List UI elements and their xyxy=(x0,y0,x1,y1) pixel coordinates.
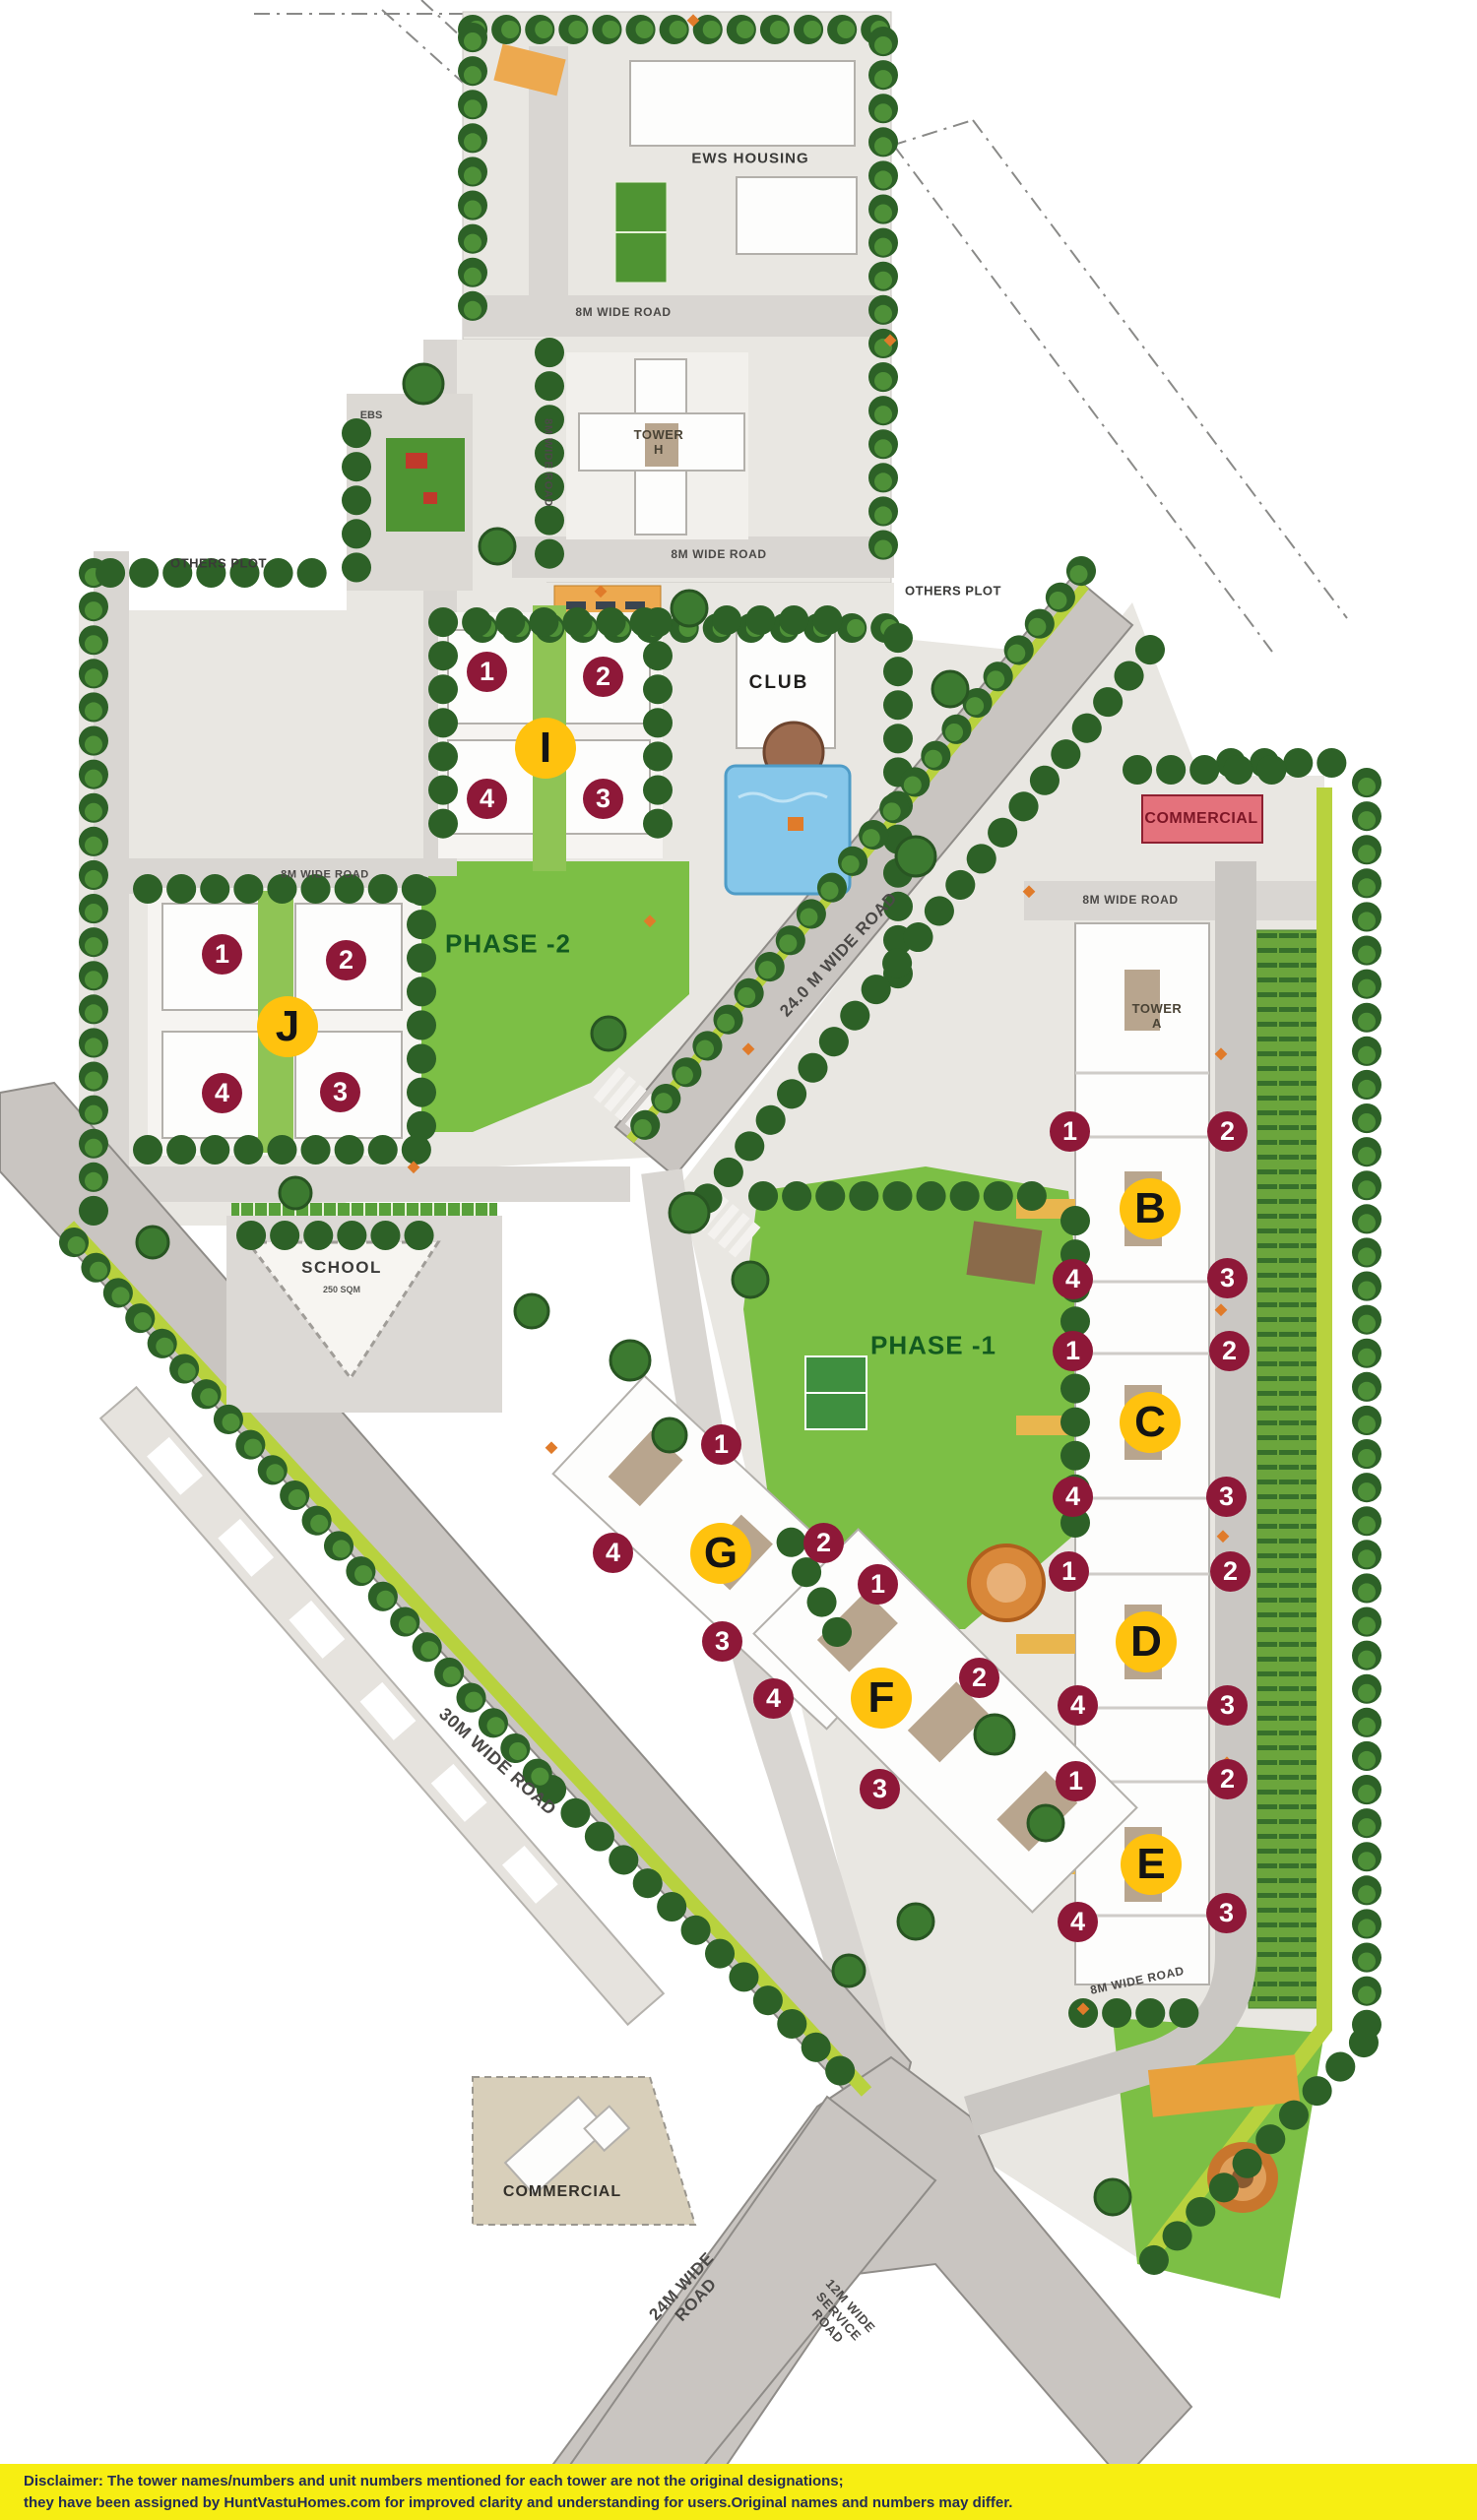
tower-i-unit-3-badge[interactable]: 3 xyxy=(583,779,623,819)
tower-j-marker[interactable]: J xyxy=(257,996,318,1057)
disclaimer-line1-text: The tower names/numbers and unit numbers… xyxy=(103,2473,844,2489)
tower-f-marker[interactable]: F xyxy=(851,1668,912,1729)
tower-b-unit-1-badge[interactable]: 1 xyxy=(1050,1111,1090,1152)
road-label-0: 8M WIDE ROAD xyxy=(575,305,671,319)
tower-g-unit-3-badge[interactable]: 3 xyxy=(702,1621,742,1662)
road-label-2: 8M WIDE ROAD xyxy=(671,547,766,561)
road-label-4: 8M WIDE ROAD xyxy=(1082,893,1178,907)
road-label-6: 24.0 M WIDE ROAD xyxy=(776,889,902,1022)
tower-e-unit-3-badge[interactable]: 3 xyxy=(1206,1893,1247,1933)
tower-d-marker[interactable]: D xyxy=(1116,1611,1177,1672)
tower-e-marker[interactable]: E xyxy=(1121,1834,1182,1895)
tower-b-unit-3-badge[interactable]: 3 xyxy=(1207,1258,1248,1298)
tower-g-unit-2-badge[interactable]: 2 xyxy=(803,1523,844,1563)
tower-d-unit-2-badge[interactable]: 2 xyxy=(1210,1551,1251,1592)
tower-e-unit-4-badge[interactable]: 4 xyxy=(1058,1902,1098,1942)
disclaimer-prefix: Disclaimer: xyxy=(24,2473,103,2489)
road-label-8: 24M WIDE ROAD xyxy=(645,2248,733,2338)
road-label-9: 12M WIDE SERVICE ROAD xyxy=(800,2276,878,2357)
tower-j-unit-1-badge[interactable]: 1 xyxy=(202,934,242,975)
tower-a-name-label: TOWER A xyxy=(1132,1002,1183,1032)
tower-markers-layer: I1243J1243B1243C1243D1243E1243G1243F1243… xyxy=(0,0,1477,2520)
road-label-7: 30M WIDE ROAD xyxy=(434,1704,560,1820)
disclaimer-bar: Disclaimer: The tower names/numbers and … xyxy=(0,2464,1477,2520)
tower-i-unit-1-badge[interactable]: 1 xyxy=(467,652,507,692)
tower-i-unit-2-badge[interactable]: 2 xyxy=(583,657,623,697)
tower-g-marker[interactable]: G xyxy=(690,1523,751,1584)
site-plan-stage: EWS HOUSING EBS OTHERS PLOT OTHERS PLOT … xyxy=(0,0,1477,2520)
tower-d-unit-4-badge[interactable]: 4 xyxy=(1058,1685,1098,1726)
tower-b-marker[interactable]: B xyxy=(1120,1178,1181,1239)
tower-f-unit-3-badge[interactable]: 3 xyxy=(860,1769,900,1809)
tower-c-unit-4-badge[interactable]: 4 xyxy=(1053,1477,1093,1517)
tower-f-unit-1-badge[interactable]: 1 xyxy=(858,1564,898,1605)
tower-g-unit-4-badge[interactable]: 4 xyxy=(593,1533,633,1573)
tower-b-unit-4-badge[interactable]: 4 xyxy=(1053,1259,1093,1299)
road-label-1: 8M WIDE ROAD xyxy=(541,418,553,507)
tower-i-marker[interactable]: I xyxy=(515,718,576,779)
tower-f-unit-4-badge[interactable]: 4 xyxy=(753,1678,794,1719)
tower-b-unit-2-badge[interactable]: 2 xyxy=(1207,1111,1248,1152)
road-label-3: 8M WIDE ROAD xyxy=(281,868,369,881)
tower-c-unit-3-badge[interactable]: 3 xyxy=(1206,1477,1247,1517)
disclaimer-line-2: they have been assigned by HuntVastuHome… xyxy=(24,2492,1467,2514)
road-label-5: 8M WIDE ROAD xyxy=(1089,1964,1186,1997)
tower-c-marker[interactable]: C xyxy=(1120,1392,1181,1453)
tower-d-unit-1-badge[interactable]: 1 xyxy=(1049,1551,1089,1592)
tower-c-unit-2-badge[interactable]: 2 xyxy=(1209,1331,1250,1371)
disclaimer-line-1: Disclaimer: The tower names/numbers and … xyxy=(24,2471,1467,2492)
tower-d-unit-3-badge[interactable]: 3 xyxy=(1207,1685,1248,1726)
tower-c-unit-1-badge[interactable]: 1 xyxy=(1053,1331,1093,1371)
tower-i-unit-4-badge[interactable]: 4 xyxy=(467,779,507,819)
tower-j-unit-3-badge[interactable]: 3 xyxy=(320,1072,360,1112)
tower-j-unit-4-badge[interactable]: 4 xyxy=(202,1073,242,1113)
tower-e-unit-1-badge[interactable]: 1 xyxy=(1056,1761,1096,1801)
tower-h-name-label: TOWER H xyxy=(634,428,684,458)
tower-e-unit-2-badge[interactable]: 2 xyxy=(1207,1759,1248,1799)
tower-f-unit-2-badge[interactable]: 2 xyxy=(959,1658,999,1698)
tower-j-unit-2-badge[interactable]: 2 xyxy=(326,940,366,980)
tower-g-unit-1-badge[interactable]: 1 xyxy=(701,1424,741,1465)
